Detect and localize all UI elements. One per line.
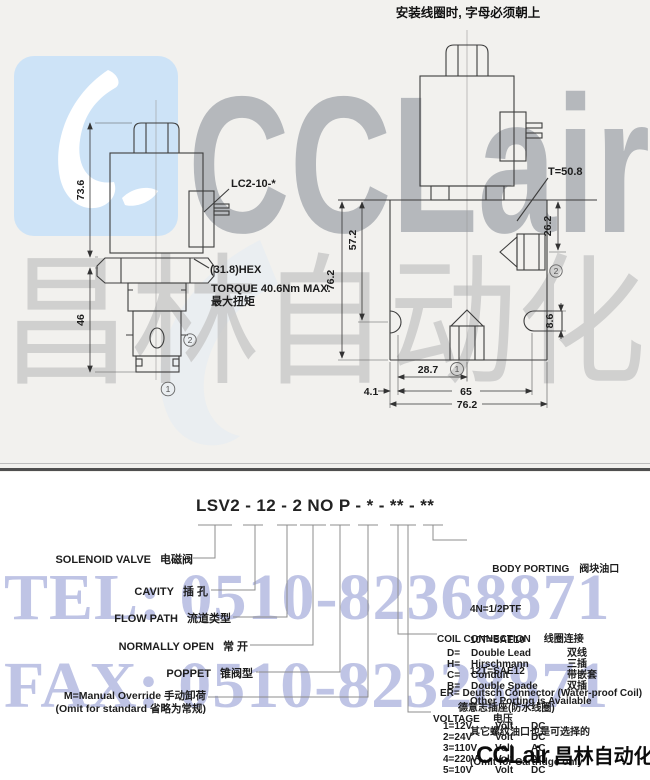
dim-port-depth: 26.2 xyxy=(542,216,554,237)
dimension-drawings: CCLair 昌林自动化 xyxy=(0,0,650,472)
dim-slot-height: 8.6 xyxy=(544,314,556,329)
label-cn: 电磁阀 xyxy=(160,554,193,566)
porting-option: 4N=1/2PTF xyxy=(470,605,619,615)
dim-holes: 65 xyxy=(460,386,472,398)
coil-model-label: LC2-10-* xyxy=(231,178,276,190)
title-en: BODY PORTING xyxy=(492,564,569,575)
label-en: M=Manual Override xyxy=(64,690,161,702)
dim-inner-height: 57.2 xyxy=(347,230,359,251)
divider-thick xyxy=(0,468,650,471)
label-manual-override: M=Manual Override 手动卸荷 (Omit for standar… xyxy=(20,690,206,715)
ordering-section: TEL: 0510-82368871 FAX: 0510-82328871 LS… xyxy=(0,472,650,780)
dim-port-x: 28.7 xyxy=(418,364,439,376)
label-en: SOLENOID VALVE xyxy=(55,554,151,566)
option-code: ER= xyxy=(440,688,460,699)
torque-label-en: TORQUE 40.6Nm MAX. xyxy=(211,283,331,295)
port2-number: 2 xyxy=(554,266,559,276)
dim-body-height: 46 xyxy=(75,314,87,326)
coil-option-er: ER= Deutsch Connector (Water-proof Coil) xyxy=(440,688,642,699)
voltage-option-1: 1=12VVoltDC xyxy=(443,721,545,732)
catalog-page: CCLair 昌林自动化 xyxy=(0,0,650,780)
label-cn: 流道类型 xyxy=(187,613,231,625)
label-cn: 手动卸荷 xyxy=(164,690,206,702)
dim-total-height: 76.2 xyxy=(325,270,337,291)
coil-install-note: 安装线圈时, 字母必须朝上 xyxy=(396,5,541,20)
company-logo: CCLair昌林自动化 xyxy=(476,740,650,770)
label-cn2: 省略为常规) xyxy=(150,703,206,715)
company-logo-latin: CCLair xyxy=(476,742,549,769)
label-en: NORMALLY OPEN xyxy=(119,641,214,653)
label-normally-open: NORMALLY OPEN常 开 xyxy=(119,638,248,654)
label-en: FLOW PATH xyxy=(114,613,178,625)
manual-override-line1: M=Manual Override 手动卸荷 xyxy=(20,690,206,703)
port1-number: 1 xyxy=(166,384,171,394)
option-en: Deutsch Connector (Water-proof Coil) xyxy=(463,688,643,699)
dim-total-width: 76.2 xyxy=(457,399,478,411)
manual-override-line2: (Omit for standard 省略为常规) xyxy=(20,703,206,716)
company-logo-cn: 昌林自动化 xyxy=(554,746,650,768)
watermark-latin: CCLair xyxy=(188,56,650,274)
label-en2: (Omit for standard xyxy=(55,703,147,715)
port2-number: 2 xyxy=(188,335,193,345)
label-en: CAVITY xyxy=(134,586,174,598)
volt-unit: Volt xyxy=(495,721,531,732)
dim-coil-height: 73.6 xyxy=(75,180,87,201)
label-flow-path: FLOW PATH流道类型 xyxy=(114,610,231,626)
volt-type: DC xyxy=(531,721,545,732)
divider-thin xyxy=(0,463,650,464)
volt-code: 1=12V xyxy=(443,721,495,732)
label-solenoid-valve: SOLENOID VALVE电磁阀 xyxy=(55,551,193,567)
cclair-watermark: CCLair 昌林自动化 xyxy=(2,56,650,445)
port1-number: 1 xyxy=(455,364,460,374)
hex-size-label: (31.8)HEX xyxy=(210,264,262,276)
label-cn: 插 孔 xyxy=(183,586,208,598)
dim-edge: 4.1 xyxy=(364,386,379,398)
model-code: LSV2 - 12 - 2 NO P - * - ** - ** xyxy=(196,496,434,516)
coil-connection-title: COIL CONNECTION线圈连接 xyxy=(437,630,584,645)
body-porting-title: BODY PORTING阀块油口 xyxy=(470,554,619,585)
torque-label-cn: 最大扭矩 xyxy=(211,294,255,308)
label-en: POPPET xyxy=(166,668,211,680)
title-cn: 阀块油口 xyxy=(579,564,619,575)
dim-t-label: T=50.8 xyxy=(548,166,583,178)
label-poppet: POPPET锥阀型 xyxy=(166,665,253,681)
label-cn: 常 开 xyxy=(223,641,248,653)
label-cn: 锥阀型 xyxy=(220,668,253,680)
label-cavity: CAVITY插 孔 xyxy=(134,583,208,599)
